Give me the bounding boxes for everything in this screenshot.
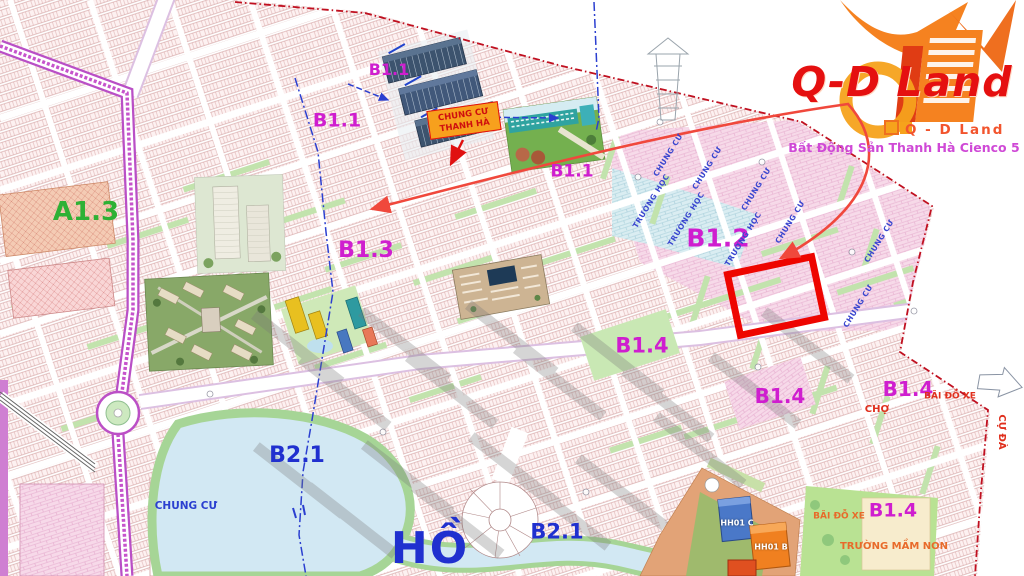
brand-square-icon — [884, 120, 899, 135]
zone-label-b11-b: B1.1 — [369, 62, 410, 78]
building-label-hh01c: HH01 C — [720, 519, 753, 528]
poi-label-truongmamnon: TRƯỜNG MẦM NON — [840, 542, 948, 552]
poi-label-chungcu: CHUNG CƯ — [155, 501, 218, 512]
zone-label-b13: B1.3 — [338, 240, 394, 262]
poi-label-baidoxe-1: BÃI ĐỖ XE — [924, 393, 976, 402]
zone-label-b14-a: B1.4 — [615, 336, 668, 357]
zone-label-b14-b: B1.4 — [755, 386, 806, 406]
zone-label-b11-a: B1.1 — [313, 112, 361, 131]
zone-label-b21-a: B2.1 — [269, 445, 325, 467]
render-white-towers — [194, 174, 285, 273]
brand-logo: Q-D Land Q - D Land Bất Động Sản Thanh H… — [788, 0, 1020, 162]
brand-name: Q-D Land — [788, 58, 1016, 106]
roundabout — [97, 392, 139, 434]
zone-label-b21-b: B2.1 — [530, 522, 583, 543]
poi-label-baidoxe-2: BÃI ĐỖ XE — [813, 513, 865, 522]
brand-subtitle-text: Q - D Land — [905, 122, 1004, 138]
zone-label-ho: HỒ — [391, 527, 469, 571]
brick-block-sw — [20, 484, 104, 576]
exit-arrow — [976, 362, 1024, 402]
photo-aerial-complex — [145, 273, 274, 371]
zone-label-a13: A1.3 — [53, 199, 119, 225]
brand-subtitle: Q - D Land — [884, 120, 1004, 138]
building-label-hh01b: HH01 B — [754, 543, 787, 552]
zone-label-b11-c: B1.1 — [550, 164, 593, 181]
poi-label-cuda: CỰ ĐÀ — [996, 414, 1006, 449]
poi-label-cho: CHỢ — [865, 405, 889, 415]
zone-label-b14-d: B1.4 — [869, 502, 917, 521]
brand-tagline: Bất Động Sản Thanh Hà Cienco 5 — [788, 140, 1020, 155]
map-canvas: A1.3 B1.1 B1.1 B1.1 B1.2 B1.3 B1.4 B1.4 … — [0, 0, 1024, 576]
